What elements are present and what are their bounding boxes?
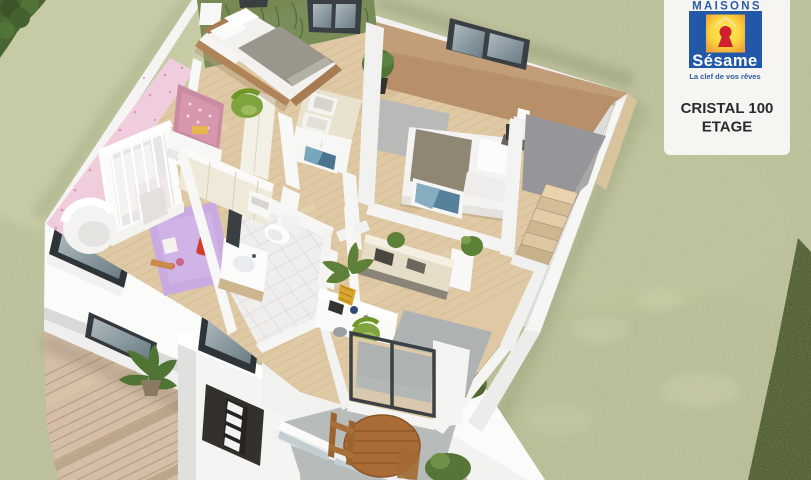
svg-text:CRISTAL 100: CRISTAL 100 (681, 100, 774, 117)
svg-text:MAISONS: MAISONS (692, 1, 762, 13)
svg-text:ETAGE: ETAGE (702, 119, 753, 136)
svg-text:La clef de vos rêves: La clef de vos rêves (689, 72, 760, 81)
svg-text:Sésame: Sésame (692, 52, 757, 70)
